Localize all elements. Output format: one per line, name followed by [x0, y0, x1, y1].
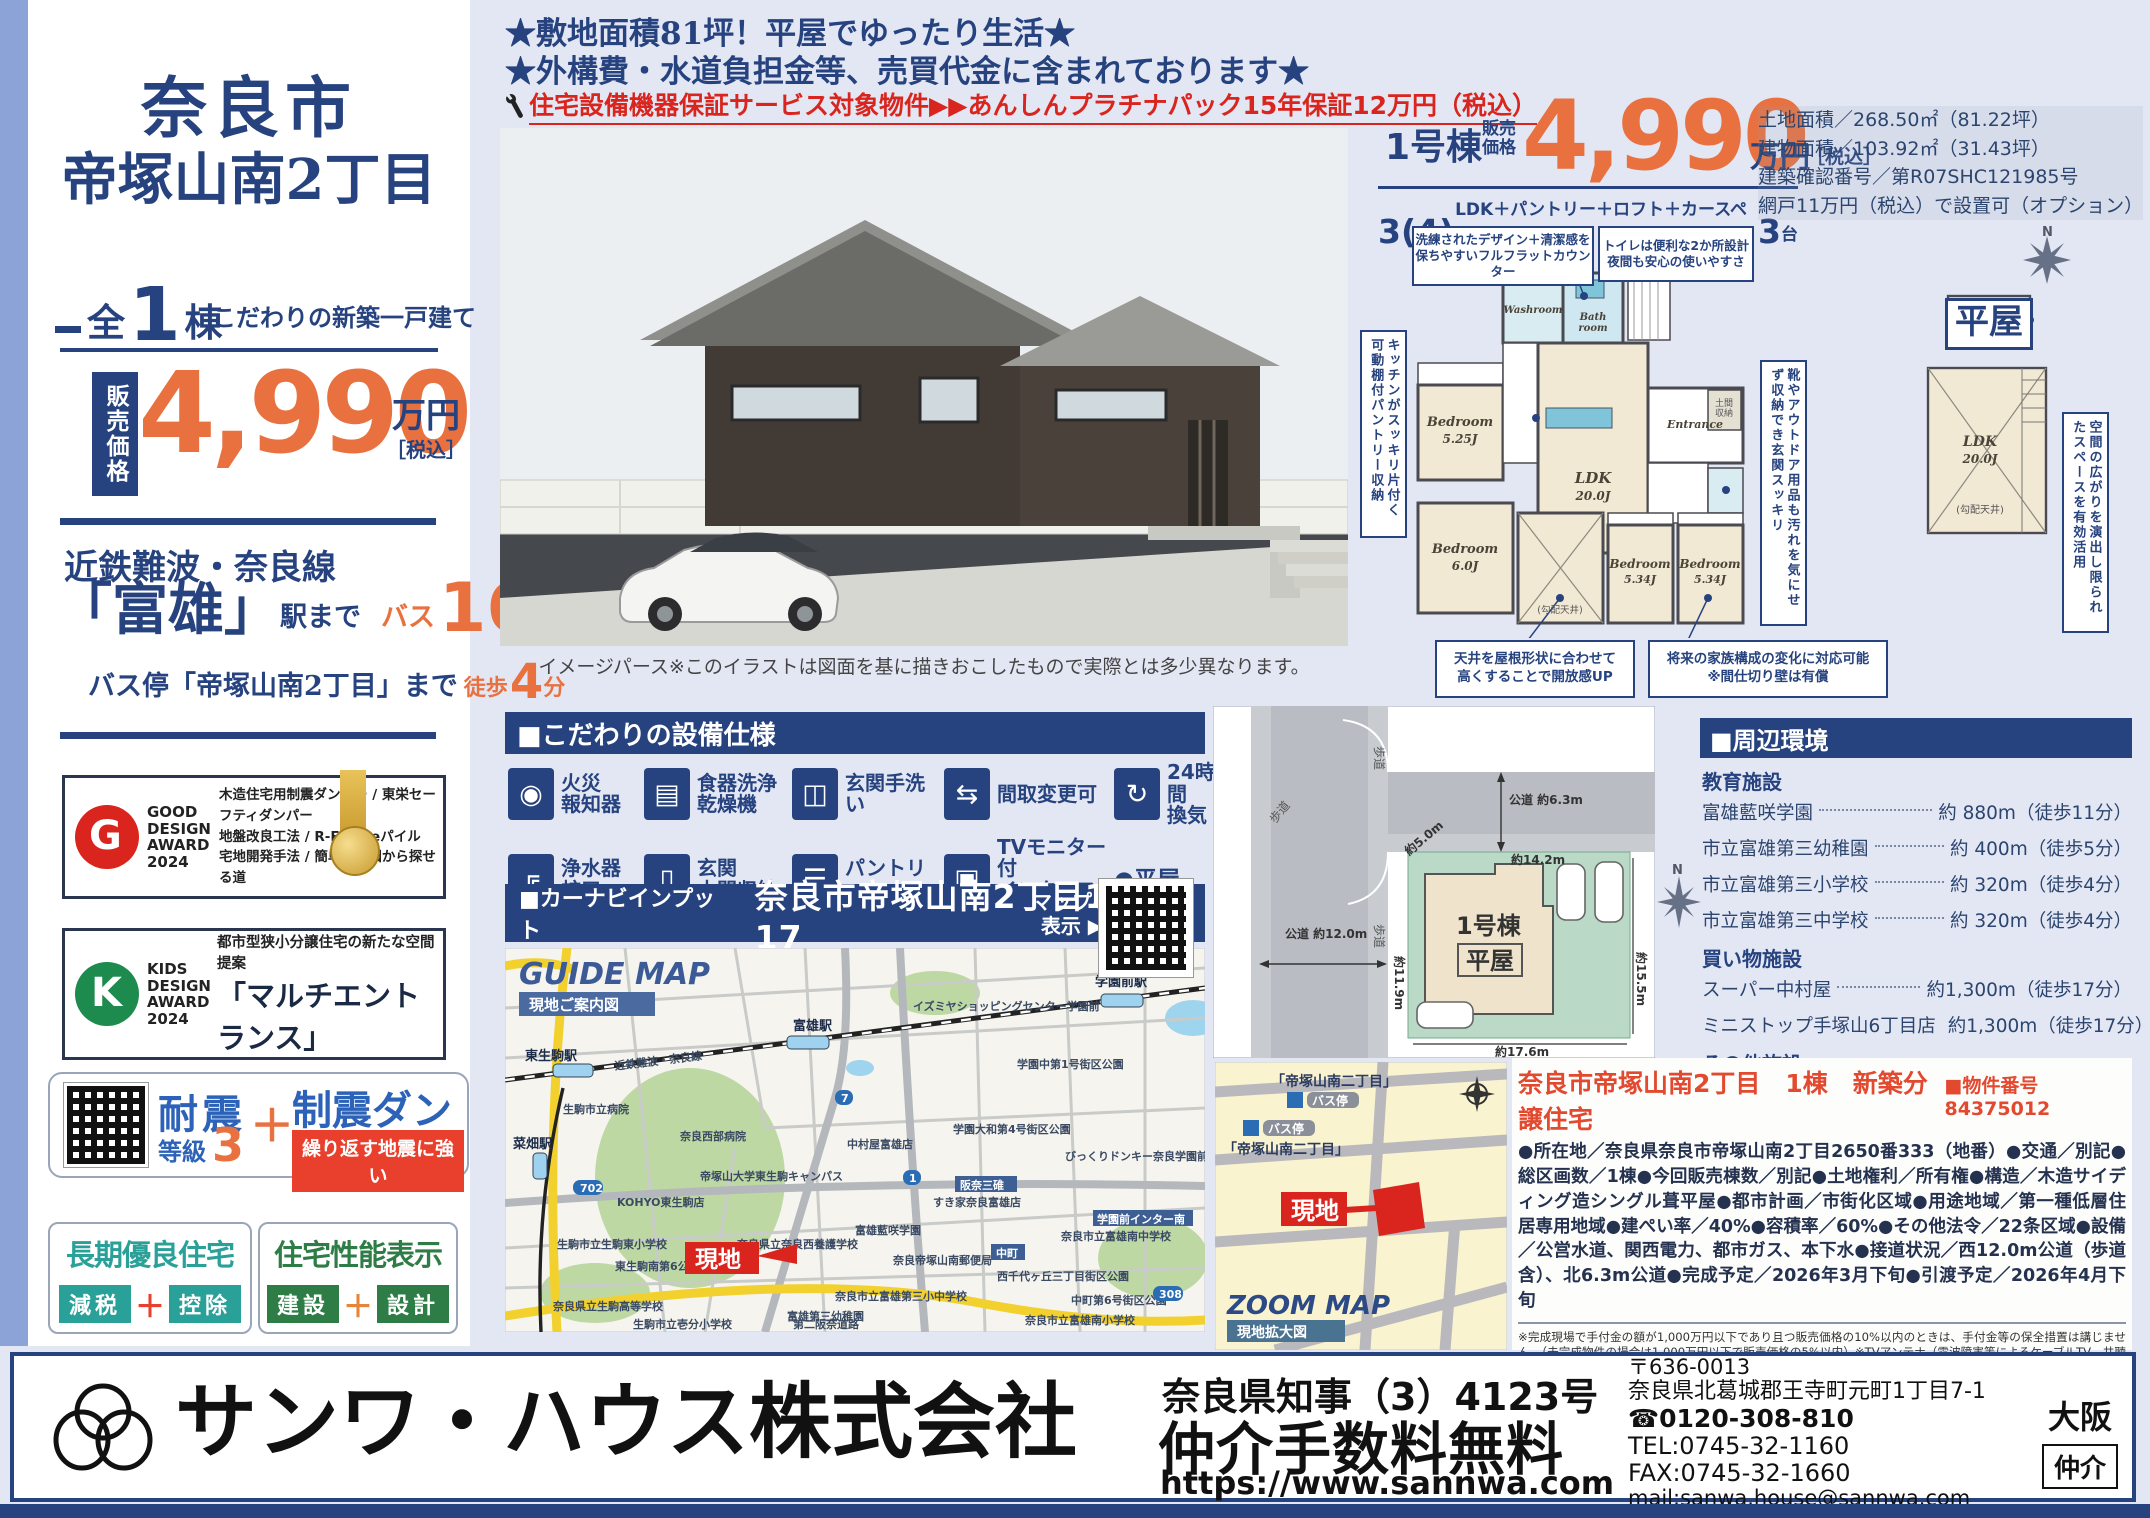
seino-hyoji-box: 住宅性能表示 建設 ＋ 設計 [258, 1222, 458, 1334]
surroundings-title: ■周辺環境 [1710, 721, 1829, 756]
route-badge: 7 [841, 1092, 849, 1105]
facility-distance: 約 320m（徒歩4分） [1950, 907, 2132, 933]
poi-label: 帝塚山大学東生駒キャンパス [700, 1169, 843, 1183]
callout-toilet: トイレは便利な2か所設計 夜間も安心の使いやすさ [1598, 226, 1754, 282]
facility-row: 市立富雄第三小学校約 320m（徒歩4分） [1702, 871, 2132, 897]
kids-design-line1: 都市型狭小分譲住宅の新たな空間提案 [217, 931, 443, 973]
route-badge: 308 [1159, 1288, 1182, 1301]
dim-label: 公道 約6.3m [1509, 792, 1583, 807]
plan-tail: 台 [1781, 220, 1798, 245]
broker-type-badge: 仲介 [2042, 1444, 2118, 1489]
station-label: 東生駒駅 [525, 1048, 578, 1064]
poi-label: 中村屋富雄店 [847, 1137, 913, 1151]
ventilation-icon: ↻ [1114, 768, 1160, 820]
unit-name: 1号棟 [1385, 118, 1482, 170]
leader-dots [1875, 916, 1945, 919]
house-render-image [500, 128, 1348, 646]
kids-design-logo: K [75, 962, 139, 1026]
taishin-grade: 等級 [158, 1132, 206, 1167]
count-number: 1 [129, 284, 181, 347]
busstop-badge: バス停 [1312, 1093, 1348, 1108]
poi-label: 奈良市立富雄南小学校 [1024, 1313, 1136, 1327]
facility-row: 市立富雄第三幼稚園約 400m（徒歩5分） [1702, 835, 2132, 861]
poi-label: 奈良市立富雄南中学校 [1060, 1229, 1172, 1243]
siteplan-compass-icon: N [1656, 860, 1702, 940]
room-label: Bath [1579, 312, 1607, 323]
svg-text:N: N [2042, 225, 2053, 240]
facility-row: 富雄藍咲学園約 880m（徒歩11分） [1702, 799, 2132, 825]
room-label: 6.0J [1452, 559, 1480, 573]
dim-road-left: 公道 約12.0m [1285, 926, 1367, 941]
poi-label: 奈良市立富雄第三小中学校 [834, 1289, 968, 1303]
render-scene [500, 128, 1348, 646]
busstop-name: 「帝塚山南二丁目」 [1223, 1141, 1349, 1158]
poi-label: KOHYO東生駒店 [617, 1195, 705, 1209]
wrench-icon [505, 93, 525, 119]
callout-flat-counter: 洗練されたデザイン＋清潔感を 保ちやすいフルフラットカウンター [1412, 226, 1594, 286]
kids-design-award-text: KIDS DESIGN AWARD 2024 [147, 961, 217, 1027]
room-label: 20.0J [1575, 489, 1612, 503]
facility-name: 市立富雄第三中学校 [1702, 907, 1869, 933]
building-number: 1号棟 [1456, 912, 1522, 940]
busstop-badge: バス停 [1268, 1121, 1304, 1136]
room-label: LDK [1574, 469, 1613, 487]
facility-name: スーパー中村屋 [1702, 976, 1831, 1002]
medal-circle [330, 826, 380, 876]
plan-num: 3 [1758, 217, 1781, 247]
spec-item-layout-change: ⇆間取変更可 [944, 762, 1114, 827]
sidebar-rule-2 [60, 732, 436, 739]
footer-bottom-strip [0, 1504, 2150, 1518]
leader-dots [1837, 985, 1920, 988]
guide-map-subtitle: 現地ご案内図 [529, 996, 619, 1014]
carnav-label: ■カーナビインプット [519, 881, 733, 945]
seino-right: 設計 [377, 1285, 449, 1323]
site-plan: 公道 約6.3m 公道 約12.0m 約14.2m 約15.5m 約17.6m … [1213, 706, 1655, 1058]
zoom-map: 現地 「帝塚山南二丁目」 バス停 バス停 「帝塚山南二丁目」 ZOOM MAP … [1215, 1062, 1507, 1350]
property-number: ■物件番号 84375012 [1944, 1071, 2126, 1120]
leader-dots [1875, 880, 1945, 883]
seino-left: 建設 [267, 1285, 339, 1323]
unit-count-row: 全 1 棟 [55, 284, 223, 347]
render-caption: イメージパース※このイラストは図面を基に描きおこしたもので実際とは多少異なります… [500, 652, 1348, 679]
left-accent-strip [0, 0, 28, 1346]
choki-yuryo-box: 長期優良住宅 減税 ＋ 控除 [48, 1222, 252, 1334]
price-label-box: 販売価格 [92, 372, 138, 496]
poi-label: イズミヤショッピングセンター学園前 [913, 999, 1100, 1013]
seino-row: 建設 ＋ 設計 [260, 1282, 456, 1326]
spec-label: 玄関手洗い [845, 773, 944, 816]
facility-row: 市立富雄第三中学校約 320m（徒歩4分） [1702, 907, 2132, 933]
callout-ceiling: 天井を屋根形状に合わせて 高くすることで開放感UP [1435, 640, 1635, 698]
callout-future-family: 将来の家族構成の変化に対応可能 ※間仕切り壁は有償 [1648, 640, 1888, 698]
price-tax: ［税込］ [386, 434, 466, 463]
facility-row: ミニストップ手塚山6丁目店約1,300m（徒歩17分） [1702, 1012, 2132, 1038]
loft-label: LDK [1962, 434, 1998, 450]
room-label: 収納 [1715, 407, 1733, 419]
spec-label: 間取変更可 [997, 784, 1097, 806]
station-label: 富雄駅 [793, 1018, 833, 1034]
layout-change-icon: ⇆ [944, 768, 990, 820]
spec-item-fire-alarm: ◉火災 報知器 [508, 762, 644, 827]
gold-medal [330, 770, 376, 890]
detail-line: 網戸11万円（税込）で設置可（オプション） [1758, 192, 2143, 221]
poi-label: 生駒市立生駒東小学校 [557, 1237, 668, 1251]
seismic-band: 繰り返す地震に強い [292, 1130, 464, 1192]
choki-left: 減税 [59, 1285, 131, 1323]
leader-dots [1875, 844, 1945, 847]
seismic-qr-code [64, 1083, 148, 1167]
facility-distance: 約 880m（徒歩11分） [1938, 799, 2132, 825]
poi-label: 奈良帝塚山南郵便局 [892, 1253, 992, 1267]
warranty-row: 住宅設備機器保証サービス対象物件▶▶あんしんプラチナパック15年保証12万円（税… [505, 86, 1537, 125]
guide-map: 近鉄難波・奈良線 東生駒駅 富雄駅 学園前駅 菜畑駅 生駒市立病院 奈良西部病院… [505, 948, 1205, 1332]
zoom-genchi-label: 現地 [1291, 1197, 1339, 1225]
genchi-label: 現地 [695, 1247, 741, 1273]
dishwasher-icon: ▤ [644, 768, 690, 820]
good-design-logo-glyph: G [89, 817, 125, 855]
poi-label: びっくりドンキー奈良学園前店 [1065, 1149, 1205, 1163]
area-tag: 学園前インター南 [1097, 1212, 1185, 1226]
fire-alarm-icon: ◉ [508, 768, 554, 820]
callout-entrance-storage: 靴やアウトドア用品も汚れを気にせず収納でき玄関スッキリ [1760, 360, 1807, 626]
entrance-sink-icon: ◫ [792, 768, 838, 820]
poi-label: 中町第6号街区公園 [1071, 1293, 1167, 1307]
choki-row: 減税 ＋ 控除 [50, 1282, 250, 1326]
company-address: 奈良県北葛城郡王寺町元町1丁目7-1 [1628, 1380, 1986, 1405]
poi-label: 学園中第1号街区公園 [1017, 1057, 1124, 1071]
specs-header-bar: ■こだわりの設備仕様 [505, 712, 1205, 754]
station-name: 「富雄」 [56, 582, 280, 638]
room-label: Washroom [1504, 305, 1563, 316]
area-tag: 阪奈三碓 [960, 1178, 1004, 1192]
room-label: 5.34J [1624, 573, 1657, 586]
leader-dots [1819, 808, 1932, 811]
count-note: こだわりの新築一戸建て [212, 298, 476, 333]
busstop-text: バス停「帝塚山南2丁目」まで [88, 664, 458, 703]
bus-word: バス [381, 595, 435, 634]
surroundings-header: ■周辺環境 [1700, 718, 2132, 758]
loft-label: 20.0J [1962, 452, 1999, 466]
callout-kitchen-pantry: キッチンがスッキリ片付く可動棚付パントリー収納 [1360, 330, 1407, 538]
detail-line: 建築確認番号／第R07SHC121985号 [1758, 163, 2143, 192]
zoom-map-title: ZOOM MAP [1226, 1291, 1390, 1321]
property-info-panel: 奈良市帝塚山南2丁目 1棟 新築分譲住宅 ■物件番号 84375012 ●所在地… [1512, 1058, 2132, 1350]
area-tag: 中町 [996, 1246, 1018, 1260]
station-suffix: 駅まで [280, 595, 361, 634]
detail-line: 土地面積／268.50㎡（81.22坪） [1758, 106, 2143, 135]
room-label: 5.25J [1443, 432, 1479, 446]
poi-label: 奈良西部病院 [679, 1129, 746, 1143]
poi-label: 富雄藍咲学園 [855, 1223, 921, 1237]
freedial-number: ☎0120-308-810 [1628, 1405, 1986, 1433]
kids-design-logo-glyph: K [91, 974, 122, 1012]
detail-line: 建物面積／103.92㎡（31.43坪） [1758, 135, 2143, 164]
seismic-grade-box: 耐震 等級 3 ＋ 制震ダンパー 繰り返す地震に強い [48, 1072, 469, 1178]
spec-item-entrance-sink: ◫玄関手洗い [792, 762, 944, 827]
poi-label: すき家奈良富雄店 [933, 1195, 1021, 1209]
banner-star-line2: ★外構費・水道負担金等、売買代金に含まれております★ [505, 46, 1309, 91]
station-row: 「富雄」 駅まで バス 16 分 [56, 580, 563, 638]
loft-label: (勾配天井) [1956, 503, 2004, 516]
facility-row: スーパー中村屋約1,300m（徒歩17分） [1702, 976, 2132, 1002]
room-label: room [1578, 323, 1607, 334]
building-type: 平屋 [1466, 947, 1514, 975]
count-dash [55, 326, 81, 333]
busstop-row: バス停「帝塚山南2丁目」まで 徒歩 4 分 [88, 662, 565, 703]
fax-number: FAX:0745-32-1660 [1628, 1460, 1986, 1487]
facility-name: 富雄藍咲学園 [1702, 799, 1813, 825]
city-title-line2: 帝塚山南2丁目 [28, 135, 470, 216]
surroundings-list: 教育施設 富雄藍咲学園約 880m（徒歩11分） 市立富雄第三幼稚園約 400m… [1702, 766, 2132, 1107]
company-name: サンワ・ハウス株式会社 [175, 1382, 1077, 1464]
postal-code: 〒636-0013 [1628, 1356, 1986, 1380]
property-header: 奈良市帝塚山南2丁目 1棟 新築分譲住宅 [1518, 1064, 1944, 1136]
walk-label: 歩道 [1372, 746, 1387, 770]
room-label: 5.34J [1694, 573, 1727, 586]
specs-title: ■こだわりの設備仕様 [517, 715, 776, 752]
property-divider [1518, 1322, 2126, 1324]
good-design-logo: G [75, 805, 139, 869]
good-design-award-text: GOOD DESIGN AWARD 2024 [147, 804, 219, 870]
company-logo [48, 1382, 160, 1474]
property-header-row: 奈良市帝塚山南2丁目 1棟 新築分譲住宅 ■物件番号 84375012 [1512, 1058, 2132, 1138]
count-zen: 全 [87, 292, 125, 347]
company-contact-block: 〒636-0013 奈良県北葛城郡王寺町元町1丁目7-1 ☎0120-308-8… [1628, 1356, 1986, 1511]
busstop-name: 「帝塚山南二丁目」 [1271, 1073, 1397, 1090]
flyer-page: 奈良市 帝塚山南2丁目 全 1 棟 こだわりの新築一戸建て 販売価格 4,990… [0, 0, 2150, 1518]
good-design-award-box: G GOOD DESIGN AWARD 2024 木造住宅用制震ダンパー / 東… [62, 775, 446, 899]
price-unit: 万円 [392, 388, 460, 437]
poi-label: 学園大和第4号街区公園 [953, 1122, 1071, 1136]
dim-road-left-text: 公道 約12.0m [1285, 926, 1367, 941]
guide-map-title: GUIDE MAP [519, 957, 710, 992]
property-body: ●所在地／奈良県奈良市帝塚山南2丁目2650番333（地番）●交通／別記●総区画… [1512, 1138, 2132, 1316]
land-building-details: 土地面積／268.50㎡（81.22坪） 建物面積／103.92㎡（31.43坪… [1758, 106, 2143, 220]
seismic-text-block: 耐震 等級 3 ＋ 制震ダンパー 繰り返す地震に強い [156, 1074, 461, 1176]
hiraya-badge: 平屋 [1945, 298, 2033, 350]
room-label: (勾配天井) [1537, 604, 1582, 616]
dim-right: 約15.5m [1634, 952, 1649, 1006]
callout-loft-space: 空間の広がりを演出し限られたスペースを有効活用 [2062, 412, 2109, 633]
group-shopping: 買い物施設 [1702, 943, 2132, 972]
station-label: 菜畑駅 [512, 1136, 553, 1152]
room-label: Bedroom [1608, 557, 1670, 571]
zoom-map-subtitle: 現地拡大図 [1237, 1324, 1307, 1341]
floorplan-compass-icon: N [2012, 222, 2082, 298]
walk-label: 歩道 [1372, 924, 1387, 948]
kids-design-lines: 都市型狭小分譲住宅の新たな空間提案 「マルチエントランス」 [217, 931, 443, 1057]
facility-distance: 約1,300m（徒歩17分） [1926, 976, 2132, 1002]
route-badge: 1 [909, 1172, 917, 1185]
room-label: Bedroom [1678, 557, 1740, 571]
choki-plus: ＋ [135, 1282, 165, 1326]
sidebar-rule-1 [60, 518, 436, 525]
group-education: 教育施設 [1702, 766, 2132, 795]
company-url[interactable]: https://www.sannwa.com [1160, 1464, 1614, 1502]
seino-plus: ＋ [343, 1282, 373, 1326]
poi-label: 奈良県立生駒高等学校 [552, 1299, 664, 1313]
facility-distance: 約 320m（徒歩4分） [1950, 871, 2132, 897]
dim-road-top: 公道 約6.3m [1509, 792, 1583, 807]
facility-name: 市立富雄第三幼稚園 [1702, 835, 1869, 861]
spec-label: 食器洗浄 乾燥機 [697, 773, 777, 816]
area-label: 大阪 [2048, 1392, 2112, 1438]
dim-bottom: 約17.6m [1495, 1044, 1549, 1058]
price-block-label: 販売 価格 [1482, 120, 1516, 157]
spec-label: 火災 報知器 [561, 773, 621, 816]
map-qr-code [1106, 886, 1186, 970]
kids-design-award-box: K KIDS DESIGN AWARD 2024 都市型狭小分譲住宅の新たな空間… [62, 928, 446, 1060]
compass-n: N [1672, 863, 1683, 878]
facility-distance: 約1,300m（徒歩17分） [1948, 1012, 2150, 1038]
choki-title: 長期優良住宅 [50, 1232, 250, 1274]
taishin-plus: ＋ [250, 1090, 294, 1154]
map-qr-frame [1098, 878, 1194, 978]
room-label: Bedroom [1431, 542, 1498, 557]
choki-right: 控除 [169, 1285, 241, 1323]
dim-left: 約11.9m [1392, 956, 1407, 1010]
facility-name: 市立富雄第三小学校 [1702, 871, 1869, 897]
room-label: Entrance [1666, 418, 1723, 431]
dim-top: 約14.2m [1511, 852, 1565, 867]
poi-label: 生駒市立壱分小学校 [633, 1317, 733, 1331]
room-label: 土間 [1715, 397, 1733, 409]
seino-title: 住宅性能表示 [260, 1232, 456, 1274]
room-label: Bedroom [1426, 415, 1493, 430]
tel-number: TEL:0745-32-1160 [1628, 1433, 1986, 1460]
taishin-grade-num: 3 [212, 1118, 244, 1172]
poi-label: 第二阪奈道路 [793, 1317, 860, 1331]
poi-label: 生駒市立病院 [563, 1102, 629, 1116]
route-badge: 702 [580, 1182, 603, 1195]
kids-design-line2: 「マルチエントランス」 [217, 973, 443, 1057]
spec-item-dishwasher: ▤食器洗浄 乾燥機 [644, 762, 792, 827]
poi-label: 西千代ヶ丘三丁目街区公園 [997, 1269, 1129, 1283]
facility-distance: 約 400m（徒歩5分） [1950, 835, 2132, 861]
facility-name: ミニストップ手塚山6丁目店 [1702, 1012, 1936, 1038]
